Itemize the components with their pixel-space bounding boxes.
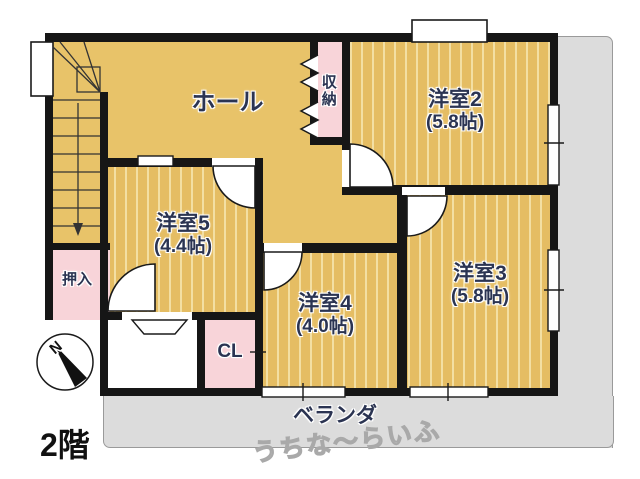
door-arc-room5-top (213, 166, 255, 208)
window-room5-interior (138, 156, 173, 166)
compass: N (37, 334, 93, 390)
floor-plan-2f: N ホール 洋室2 (5.8帖) 洋室3 (5.8帖) 洋室4 (4.0帖) 洋… (0, 0, 640, 479)
cl-label: CL (205, 341, 255, 362)
staircase-symbol (53, 42, 100, 226)
room3-size: (5.8帖) (410, 286, 550, 307)
stairs-down-arrow (73, 223, 83, 236)
door-gap-room2 (342, 150, 350, 187)
window-bottom-room3 (410, 387, 488, 397)
step-symbol (132, 320, 187, 334)
storage-label: 収納 (319, 55, 336, 127)
room3-label: 洋室3 (5.8帖) (410, 262, 550, 307)
door-gap-room3 (402, 187, 445, 195)
door-arc-room2 (350, 144, 393, 187)
room5-label: 洋室5 (4.4帖) (113, 212, 253, 257)
room5-name: 洋室5 (113, 212, 253, 236)
folding-door-icon-lower (301, 102, 318, 138)
room3-name: 洋室3 (410, 262, 550, 286)
floor-number-label: 2階 (40, 420, 90, 466)
window-right-room2 (548, 105, 559, 185)
door-arc-room4 (264, 252, 302, 290)
room2-name: 洋室2 (385, 88, 525, 112)
folding-door-icon-upper (301, 55, 318, 91)
window-top-room2 (412, 20, 487, 42)
room2-label: 洋室2 (5.8帖) (385, 88, 525, 133)
room4-label: 洋室4 (4.0帖) (255, 292, 395, 337)
room4-size: (4.0帖) (255, 316, 395, 337)
door-arc-room5-bottom (108, 264, 155, 311)
room5-size: (4.4帖) (113, 236, 253, 257)
door-arc-room3 (407, 196, 447, 236)
room2-size: (5.8帖) (385, 112, 525, 133)
oshiire-label: 押入 (53, 272, 101, 289)
hall-label: ホール (160, 90, 295, 117)
door-gap-utility (122, 312, 192, 320)
room4-name: 洋室4 (255, 292, 395, 316)
window-left (31, 42, 53, 96)
